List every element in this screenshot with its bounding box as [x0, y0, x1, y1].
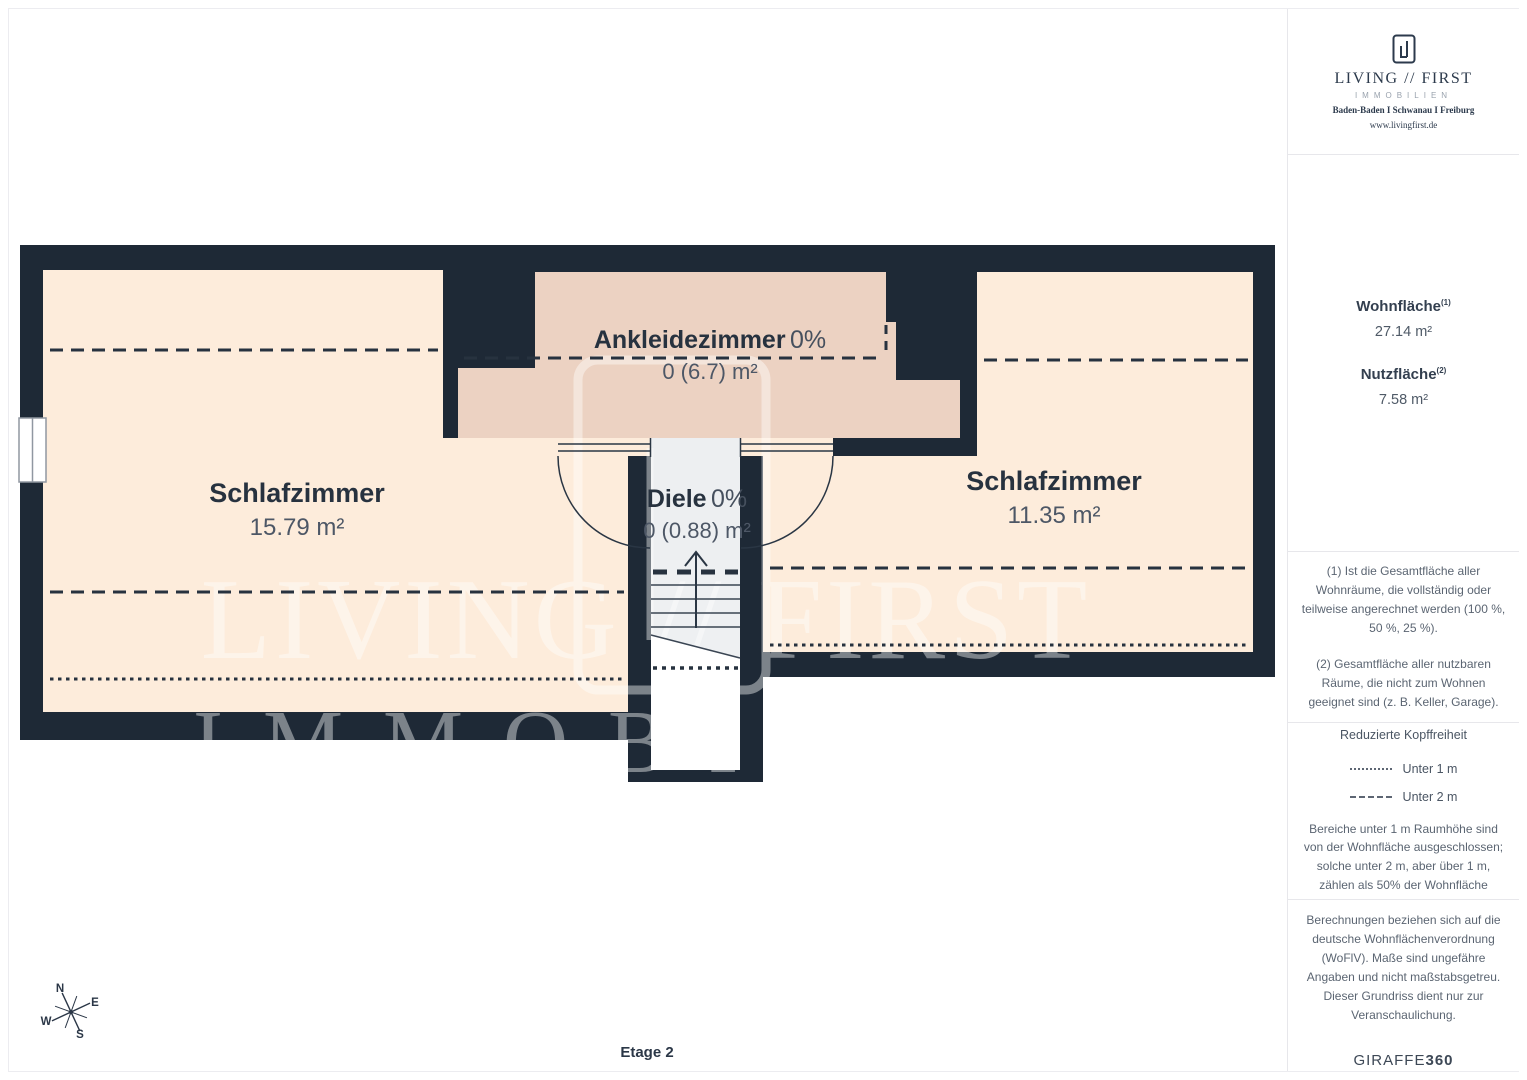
logo-website: www.livingfirst.de — [1370, 120, 1437, 130]
legend-label: Unter 2 m — [1403, 790, 1458, 804]
sidebar-notes-section: (1) Ist die Gesamtfläche aller Wohnräume… — [1288, 552, 1519, 723]
legend-note: Bereiche unter 1 m Raumhöhe sind von der… — [1299, 820, 1509, 894]
sidebar-logo-section: LIVING // FIRST IMMOBILIEN Baden-Baden I… — [1288, 9, 1519, 155]
sidebar-area-metrics: Wohnfläche(1) 27.14 m² Nutzfläche(2) 7.5… — [1288, 155, 1519, 552]
room-area: 11.35 m² — [864, 501, 1244, 531]
legend-title: Reduzierte Kopffreiheit — [1340, 728, 1467, 742]
metric-nutzflaeche: Nutzfläche(2) 7.58 m² — [1361, 366, 1447, 408]
floor-label: Etage 2 — [457, 1044, 837, 1061]
disclaimer-text: Berechnungen beziehen sich auf die deuts… — [1301, 911, 1506, 1025]
floorplan-page: { "page": { "floor_label": "Etage 2" }, … — [0, 0, 1527, 1080]
window-icon — [19, 418, 46, 482]
room-name: Ankleidezimmer — [594, 326, 786, 354]
legend-item-under-2m: Unter 2 m — [1350, 790, 1458, 804]
watermark-line1: LIVING // FIRST — [201, 556, 1092, 683]
room-area: 0 (0.88) m² — [507, 517, 887, 545]
sidebar-disclaimer-section: Berechnungen beziehen sich auf die deuts… — [1288, 900, 1519, 1071]
room-pct: 0% — [790, 326, 826, 354]
compass-icon: N E W S — [41, 983, 100, 1041]
compass-n: N — [56, 983, 64, 995]
room-name: Schlafzimmer — [107, 477, 487, 511]
metric-value: 7.58 m² — [1361, 392, 1447, 408]
metric-label: Nutzfläche — [1361, 366, 1437, 383]
note-wohnflaeche: (1) Ist die Gesamtfläche aller Wohnräume… — [1301, 562, 1506, 638]
room-pct: 0% — [711, 485, 747, 513]
metric-sup: (2) — [1437, 366, 1447, 375]
room-label-schlafzimmer-left: Schlafzimmer 15.79 m² — [107, 477, 487, 543]
compass-w: W — [41, 1016, 52, 1028]
room-name: Schlafzimmer — [864, 465, 1244, 499]
brand-suffix: 360 — [1425, 1052, 1453, 1069]
legend-item-under-1m: Unter 1 m — [1350, 762, 1458, 776]
logo-title: LIVING // FIRST — [1334, 70, 1472, 88]
logo-locations: Baden-Baden I Schwanau I Freiburg — [1333, 105, 1475, 115]
watermark-line2: IMMOBILIEN — [193, 693, 1143, 792]
living-first-logo-icon — [1392, 34, 1416, 64]
giraffe360-brand: GIRAFFE360 — [1353, 1052, 1453, 1069]
legend-label: Unter 1 m — [1403, 762, 1458, 776]
room-label-ankleidezimmer: Ankleidezimmer 0% 0 (6.7) m² — [520, 325, 900, 386]
brand-name: GIRAFFE — [1353, 1052, 1425, 1069]
room-area: 0 (6.7) m² — [520, 358, 900, 386]
compass-e: E — [91, 997, 99, 1009]
room-label-schlafzimmer-right: Schlafzimmer 11.35 m² — [864, 465, 1244, 531]
floorplan-canvas: LIVING // FIRST IMMOBILIEN — [0, 0, 1287, 1080]
dashed-line-icon — [1350, 796, 1392, 798]
room-name: Diele — [647, 485, 707, 513]
door-opening-right-floor — [740, 438, 833, 456]
metric-sup: (1) — [1441, 298, 1451, 307]
door-opening-left-floor — [558, 438, 651, 456]
metric-value: 27.14 m² — [1356, 324, 1451, 340]
metric-wohnflaeche: Wohnfläche(1) 27.14 m² — [1356, 298, 1451, 340]
sidebar: LIVING // FIRST IMMOBILIEN Baden-Baden I… — [1287, 9, 1519, 1071]
logo-subtitle: IMMOBILIEN — [1355, 91, 1452, 100]
note-nutzflaeche: (2) Gesamtfläche aller nutzbaren Räume, … — [1301, 655, 1506, 712]
dotted-line-icon — [1350, 768, 1392, 770]
room-area: 15.79 m² — [107, 513, 487, 543]
sidebar-legend-section: Reduzierte Kopffreiheit Unter 1 m Unter … — [1288, 723, 1519, 900]
room-label-diele: Diele 0% 0 (0.88) m² — [507, 484, 887, 545]
compass-s: S — [76, 1029, 84, 1041]
metric-label: Wohnfläche — [1356, 298, 1441, 315]
